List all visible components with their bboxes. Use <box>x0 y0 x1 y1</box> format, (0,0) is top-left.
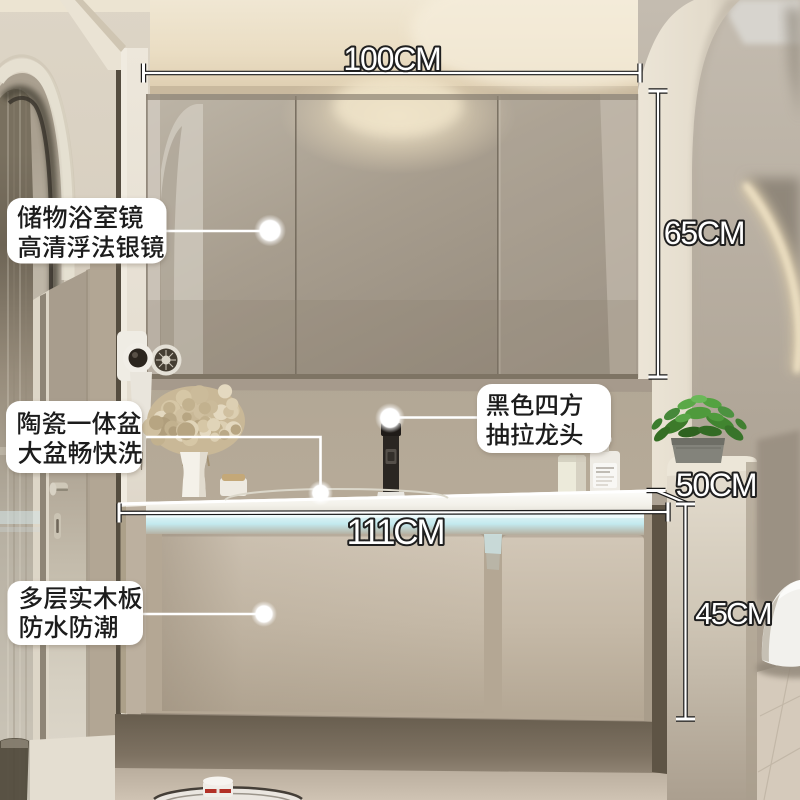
svg-text:111CM: 111CM <box>347 513 444 552</box>
svg-text:45CM: 45CM <box>695 596 771 631</box>
svg-text:65CM: 65CM <box>664 215 745 251</box>
svg-text:50CM: 50CM <box>676 467 757 503</box>
svg-text:100CM: 100CM <box>343 41 440 77</box>
